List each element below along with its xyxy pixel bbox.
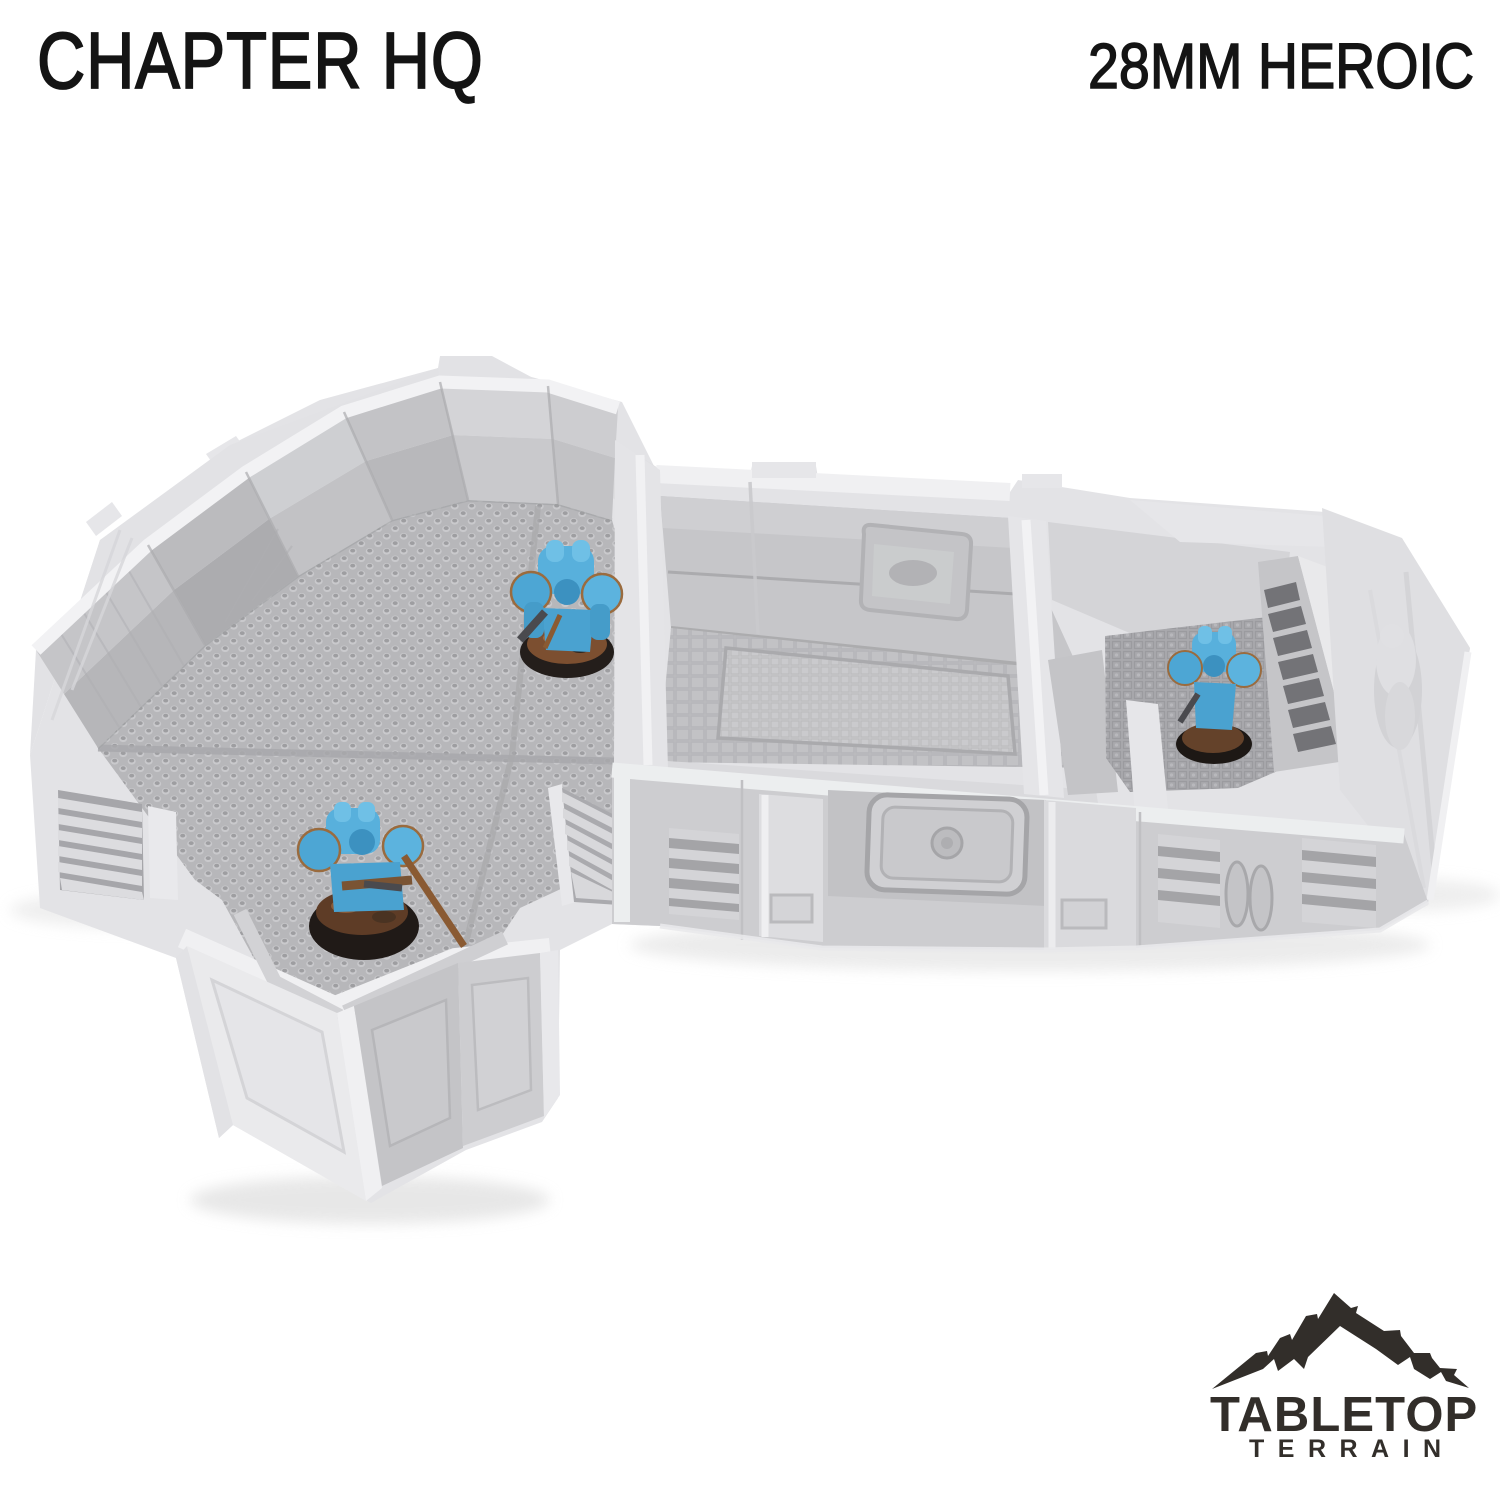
svg-text:TABLETOP: TABLETOP xyxy=(1210,1388,1478,1442)
svg-text:CHAPTER HQ: CHAPTER HQ xyxy=(37,15,484,105)
svg-text:TERRAIN: TERRAIN xyxy=(1249,1435,1455,1463)
svg-text:28MM HEROIC: 28MM HEROIC xyxy=(1088,30,1474,102)
